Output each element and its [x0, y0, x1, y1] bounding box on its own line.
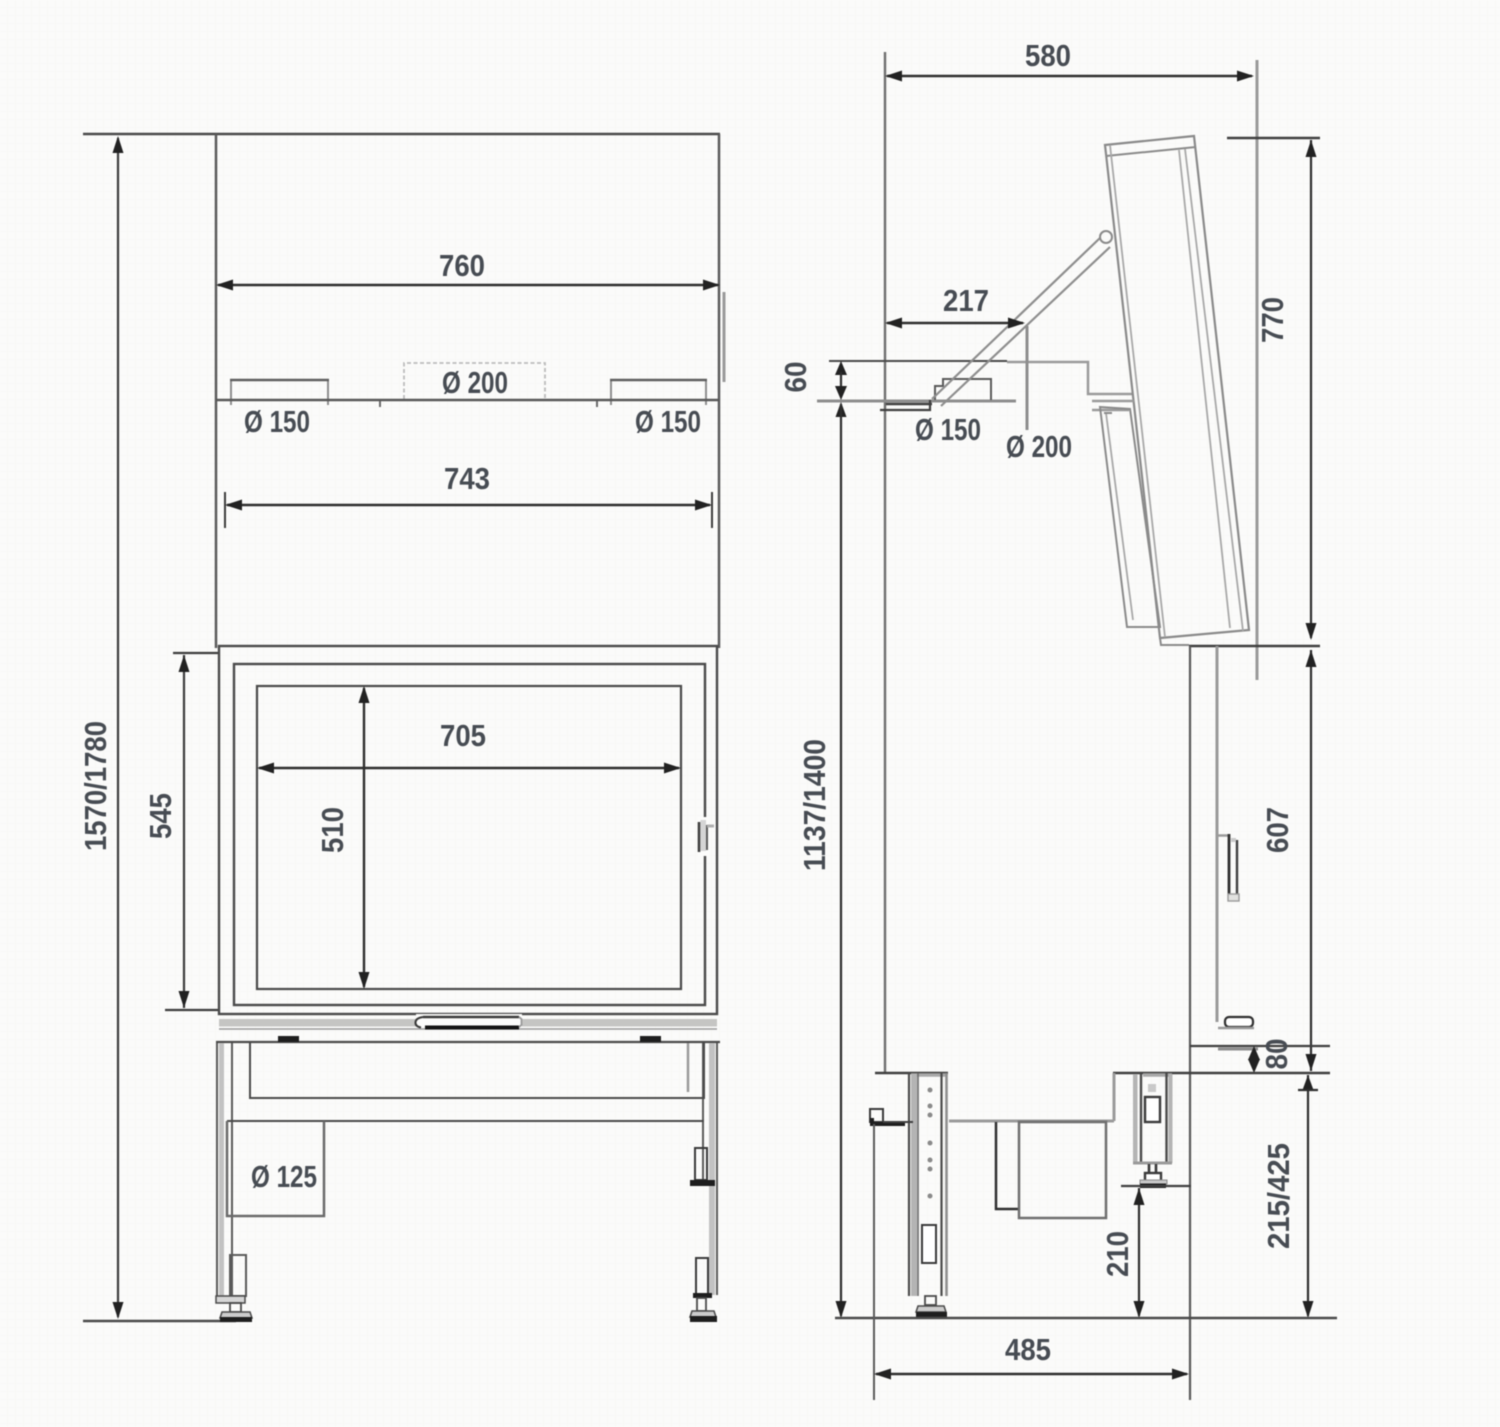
- svg-text:Ø 150: Ø 150: [635, 404, 701, 439]
- svg-text:705: 705: [440, 718, 486, 753]
- svg-text:80: 80: [1259, 1039, 1294, 1070]
- svg-text:485: 485: [1005, 1332, 1051, 1367]
- svg-text:1137/1400: 1137/1400: [797, 739, 832, 871]
- svg-text:Ø 200: Ø 200: [1006, 429, 1072, 464]
- svg-text:1570/1780: 1570/1780: [78, 721, 113, 851]
- svg-text:Ø 125: Ø 125: [251, 1159, 317, 1194]
- svg-text:217: 217: [943, 283, 989, 318]
- svg-text:743: 743: [444, 461, 490, 496]
- svg-text:215/425: 215/425: [1261, 1143, 1296, 1249]
- svg-text:580: 580: [1025, 38, 1071, 73]
- svg-text:Ø 200: Ø 200: [442, 365, 508, 400]
- svg-text:Ø 150: Ø 150: [915, 412, 981, 447]
- svg-text:607: 607: [1260, 807, 1295, 853]
- svg-text:210: 210: [1100, 1231, 1135, 1277]
- svg-text:510: 510: [315, 807, 350, 853]
- svg-text:Ø 150: Ø 150: [244, 404, 310, 439]
- svg-text:60: 60: [778, 362, 813, 393]
- svg-text:545: 545: [143, 793, 178, 839]
- svg-text:770: 770: [1255, 297, 1290, 343]
- svg-text:760: 760: [439, 248, 485, 283]
